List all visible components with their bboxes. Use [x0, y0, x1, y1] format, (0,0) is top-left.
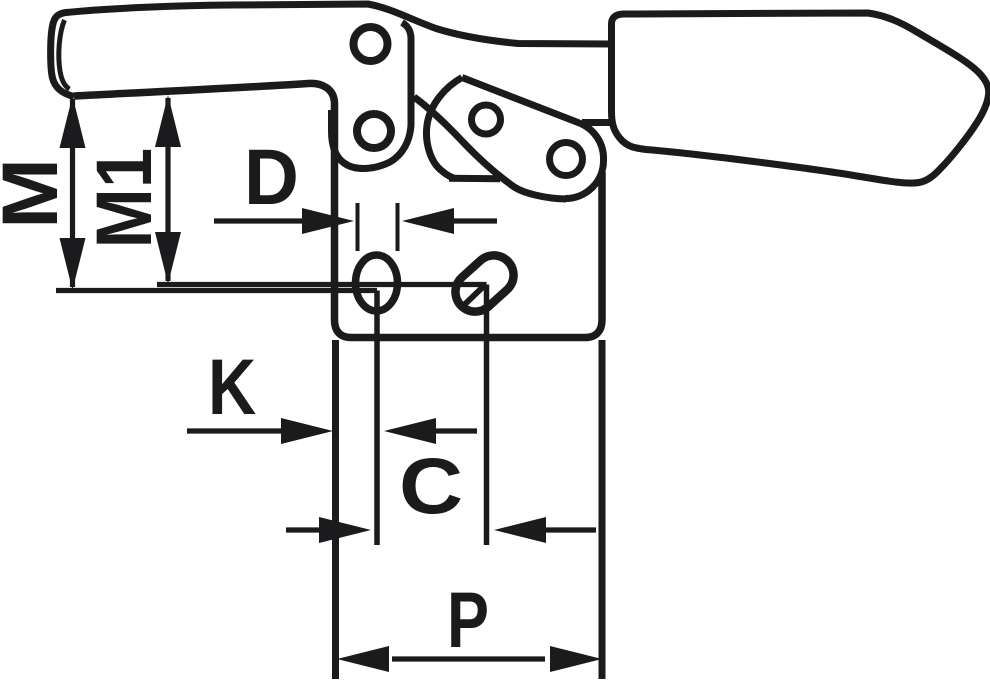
svg-text:K: K: [208, 344, 256, 431]
svg-text:P: P: [447, 576, 489, 664]
svg-text:M: M: [0, 158, 74, 229]
svg-text:C: C: [399, 442, 463, 530]
svg-text:D: D: [244, 134, 299, 222]
svg-text:M1: M1: [80, 148, 169, 249]
